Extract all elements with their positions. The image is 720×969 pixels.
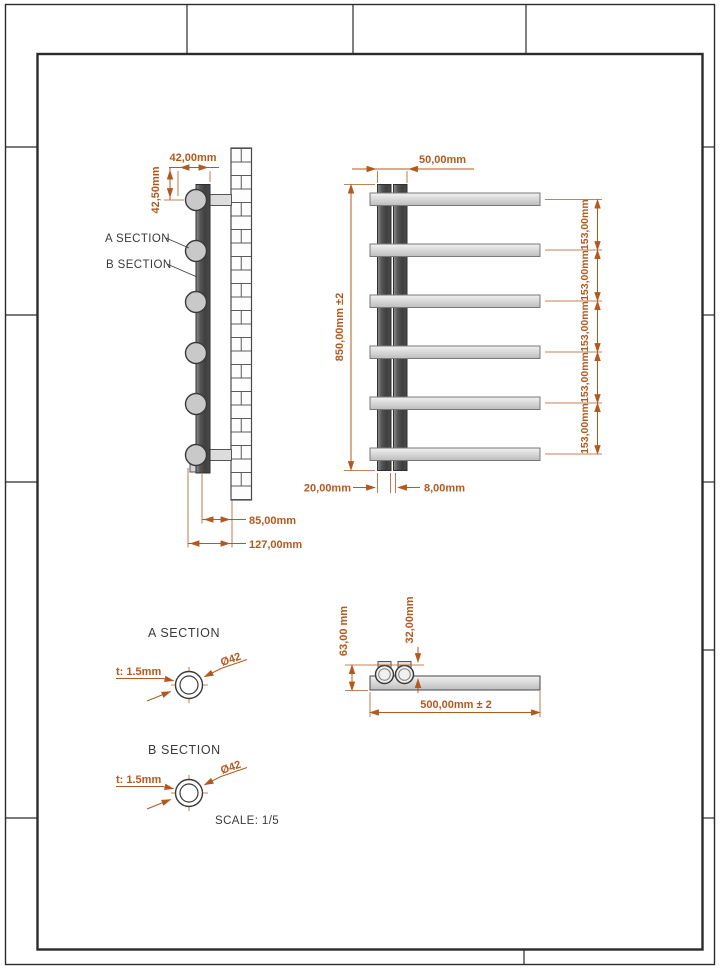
dim-top-width-label: 42,00mm xyxy=(169,152,216,164)
dim-tube-gap-label: 8,00mm xyxy=(424,483,465,495)
dim-plan-depth-label: 63,00 mm xyxy=(338,606,350,656)
wall-bracket-bottom xyxy=(210,450,232,461)
tube-end xyxy=(186,343,207,364)
dim-valve-offset-label: 32,00mm xyxy=(404,596,416,643)
dim-tube-spacing-label: 50,00mm xyxy=(419,154,466,166)
towel-rail xyxy=(370,244,540,257)
dim-height-label: 850,00mm ±2 xyxy=(334,293,346,361)
side-view: 42,00mm 42,50mm A SECTION B SECTION 85,0… xyxy=(105,148,302,551)
towel-rail xyxy=(370,295,540,308)
dim-top-height-label: 42,50mm xyxy=(150,166,162,213)
towel-rail xyxy=(370,397,540,410)
tube-end xyxy=(186,292,207,313)
scale-note: SCALE: 1/5 xyxy=(215,815,279,827)
dim-rail-pitch-label: 153,00mm xyxy=(579,352,591,403)
technical-drawing: 42,00mm 42,50mm A SECTION B SECTION 85,0… xyxy=(0,0,720,969)
section-b-thickness-label: t: 1.5mm xyxy=(116,774,161,786)
section-b-diameter-label: Ø42 xyxy=(219,759,243,777)
radiator-side-profile xyxy=(196,185,210,474)
dim-rail-pitch-label: 153,00mm xyxy=(579,199,591,250)
dim-rail-pitch-label: 153,00mm xyxy=(579,403,591,454)
vertical-tube-right xyxy=(394,185,408,471)
section-b-title: B SECTION xyxy=(148,743,221,757)
dim-rail-pitch-label: 153,00mm xyxy=(579,301,591,352)
towel-rail xyxy=(370,346,540,359)
towel-rail xyxy=(370,448,540,461)
section-a-title: A SECTION xyxy=(148,626,220,640)
vertical-tube-left xyxy=(378,185,392,471)
dim-plan-width-label: 500,00mm ± 2 xyxy=(420,699,491,711)
wall-brick-column xyxy=(231,148,252,500)
tube-end xyxy=(186,190,207,211)
drawing-sheet: 42,00mm 42,50mm A SECTION B SECTION 85,0… xyxy=(0,0,720,969)
tube-end xyxy=(186,394,207,415)
section-a-detail: A SECTION t: 1.5mm Ø42 xyxy=(116,626,247,703)
sheet-frame xyxy=(6,5,715,965)
dim-tube-width-label: 20,00mm xyxy=(304,483,351,495)
dim-depth-total-label: 127,00mm xyxy=(249,539,302,551)
section-a-diameter-label: Ø42 xyxy=(219,651,243,669)
section-b-detail: B SECTION t: 1.5mm Ø42 xyxy=(116,743,247,811)
tube-end xyxy=(186,445,207,466)
tube-end xyxy=(186,241,207,262)
front-view: 50,00mm 850,00mm ±2 153,00mm 153,00mm 15… xyxy=(304,154,602,495)
towel-rail xyxy=(370,193,540,206)
section-a-thickness-label: t: 1.5mm xyxy=(116,666,161,678)
callout-b-section: B SECTION xyxy=(106,259,172,271)
wall-bracket-top xyxy=(210,195,232,206)
dim-rail-pitch-label: 153,00mm xyxy=(579,250,591,301)
top-view: 63,00 mm 32,00mm 500,00mm ± 2 xyxy=(338,596,540,717)
dim-depth-inner-label: 85,00mm xyxy=(249,515,296,527)
callout-a-section: A SECTION xyxy=(105,233,170,245)
